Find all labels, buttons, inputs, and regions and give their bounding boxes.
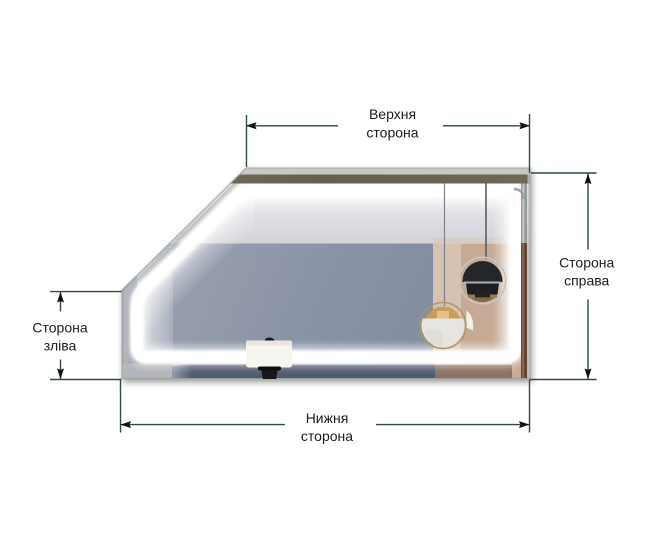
svg-text:Нижня: Нижня [306, 410, 349, 426]
svg-text:справа: справа [564, 272, 609, 288]
svg-text:Сторона: Сторона [559, 255, 614, 271]
svg-text:сторона: сторона [366, 125, 418, 141]
svg-text:Верхня: Верхня [369, 106, 416, 122]
svg-text:зліва: зліва [44, 337, 77, 353]
svg-text:Сторона: Сторона [32, 320, 87, 336]
svg-text:сторона: сторона [301, 428, 353, 444]
